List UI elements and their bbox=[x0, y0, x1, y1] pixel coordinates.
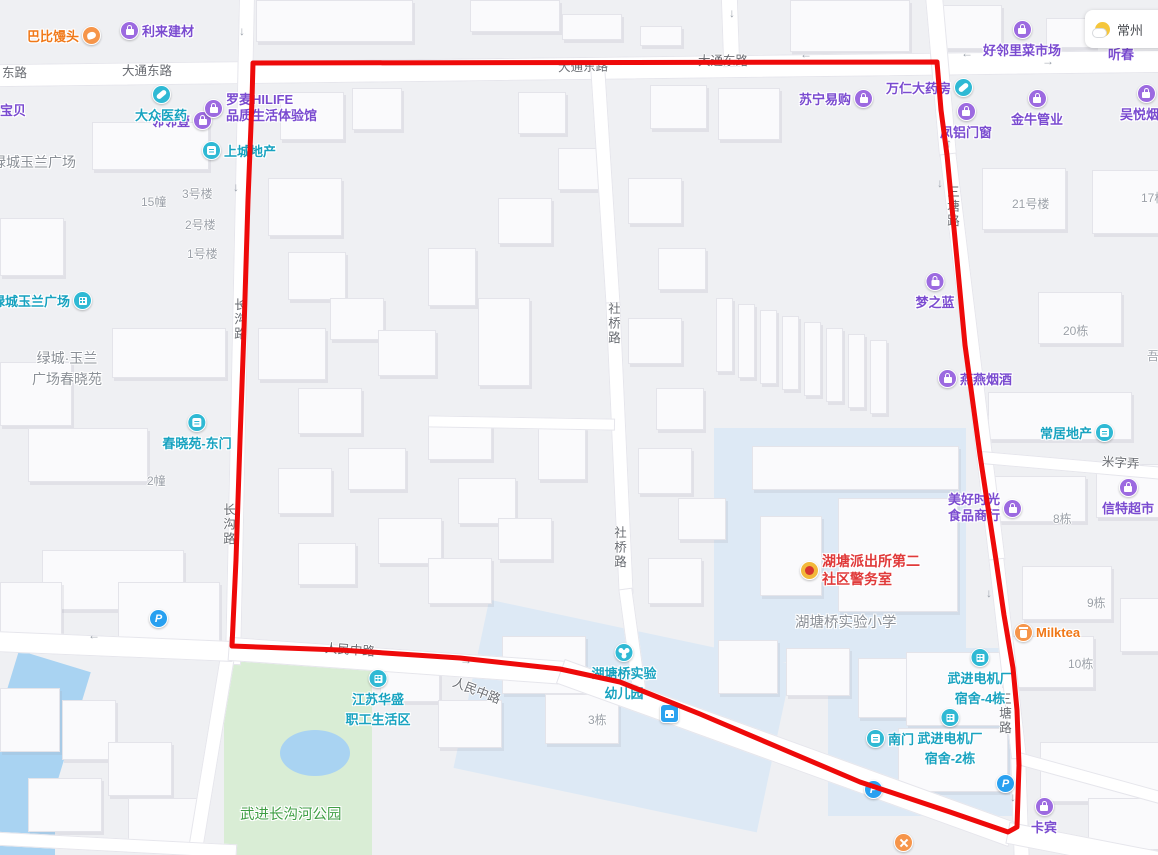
building bbox=[518, 92, 566, 134]
parking-icon[interactable]: P bbox=[149, 609, 168, 628]
building bbox=[658, 248, 706, 290]
oneway-arrow-icon: ← bbox=[88, 628, 100, 642]
building bbox=[118, 582, 220, 642]
building bbox=[330, 298, 384, 340]
oneway-arrow-icon: ← bbox=[961, 46, 973, 60]
building bbox=[28, 778, 102, 832]
pharmacy-capsule-icon bbox=[151, 85, 170, 104]
oneway-arrow-icon: ← bbox=[800, 47, 812, 61]
building-label: 15幢 bbox=[141, 193, 166, 210]
poi-shangcheng-dichan[interactable]: 上城地产 bbox=[202, 141, 276, 160]
building bbox=[790, 0, 910, 52]
building bbox=[278, 468, 332, 514]
restaurant-icon[interactable] bbox=[894, 833, 913, 852]
building bbox=[760, 310, 777, 384]
poi-police-station[interactable]: 湖塘派出所第二 社区警务室 bbox=[800, 552, 920, 588]
shopping-bag-icon bbox=[204, 99, 223, 118]
building bbox=[348, 448, 406, 490]
poi-babi-mantou[interactable]: 巴比馒头 bbox=[27, 26, 101, 45]
building bbox=[28, 428, 148, 482]
bun-shop-icon bbox=[82, 26, 101, 45]
flower-icon bbox=[614, 643, 633, 662]
road-label-datong-3: 大通东路 bbox=[698, 50, 748, 69]
building bbox=[678, 498, 726, 540]
gate-icon bbox=[188, 413, 207, 432]
shopping-bag-icon bbox=[938, 369, 957, 388]
building bbox=[848, 334, 865, 408]
shopping-bag-icon bbox=[1027, 89, 1046, 108]
building bbox=[378, 330, 436, 376]
oneway-arrow-icon: ↓ bbox=[233, 180, 239, 194]
road-label-sheqiao-2: 社桥路 bbox=[610, 526, 629, 570]
poi-haolinli-market[interactable]: 好邻里菜市场 bbox=[983, 20, 1061, 59]
shopping-bag-icon bbox=[120, 21, 139, 40]
shopping-bag-icon bbox=[956, 102, 975, 121]
building-label: 2号楼 bbox=[185, 216, 216, 233]
building bbox=[638, 448, 692, 494]
parking-icon[interactable]: P bbox=[996, 774, 1015, 793]
poi-dorm-2[interactable]: 武进电机厂 宿舍-2栋 bbox=[917, 708, 982, 767]
building-icon bbox=[970, 648, 989, 667]
sun-cloud-icon bbox=[1095, 22, 1110, 37]
poi-dorm-4[interactable]: 武进电机厂 宿舍-4栋 bbox=[947, 648, 1012, 707]
building bbox=[112, 328, 226, 378]
gate-icon bbox=[866, 729, 885, 748]
shopping-bag-icon bbox=[1136, 84, 1155, 103]
building bbox=[656, 388, 704, 430]
building-label: 8栋 bbox=[1053, 510, 1072, 527]
building bbox=[782, 316, 799, 390]
poi-yanyan-yanjiu[interactable]: 燕燕烟酒 bbox=[938, 369, 1012, 388]
poi-fenglv-menchuang[interactable]: 凤铝门窗 bbox=[940, 102, 992, 141]
poi-jinniu-guanye[interactable]: 金牛管业 bbox=[1011, 89, 1063, 128]
building bbox=[786, 648, 850, 696]
road-label-changgou-2: 长沟路 bbox=[219, 503, 238, 547]
shopping-bag-icon bbox=[1118, 478, 1137, 497]
oneway-arrow-icon: → bbox=[460, 653, 472, 667]
building-label: 10栋 bbox=[1068, 655, 1093, 672]
poi-mengzhilan[interactable]: 梦之蓝 bbox=[915, 272, 954, 311]
poi-suning[interactable]: 苏宁易购 bbox=[799, 89, 873, 108]
poi-lilai-jiancai[interactable]: 利来建材 bbox=[120, 21, 194, 40]
building bbox=[752, 446, 959, 490]
parking-icon[interactable]: P bbox=[864, 780, 883, 799]
shopping-bag-icon bbox=[1003, 499, 1022, 518]
building-label: 吾 bbox=[1147, 347, 1158, 364]
building bbox=[870, 340, 887, 414]
building-label: 17栋 bbox=[1141, 189, 1158, 206]
poi-luomai-hilife[interactable]: 罗麦HILIFE 品质生活体验馆 bbox=[204, 92, 317, 124]
building bbox=[650, 85, 707, 129]
road-label-donglu: 东路 bbox=[2, 62, 27, 81]
shopping-bag-icon bbox=[854, 89, 873, 108]
poi-dazhong-yiyao[interactable]: 大众医药 bbox=[135, 85, 187, 124]
building bbox=[298, 388, 362, 434]
real-estate-icon bbox=[202, 141, 221, 160]
shopping-bag-icon bbox=[925, 272, 944, 291]
building bbox=[628, 178, 682, 224]
poi-lvcheng-plaza[interactable]: 绿城玉兰广场 bbox=[0, 291, 92, 310]
road-label-santang-1: 三塘路 bbox=[943, 185, 962, 229]
building-label: 3号楼 bbox=[182, 185, 213, 202]
building bbox=[718, 88, 780, 140]
weather-widget[interactable]: 常州 bbox=[1085, 10, 1158, 48]
road-label-sheqiao-1: 社桥路 bbox=[604, 302, 623, 346]
building-label: 3栋 bbox=[588, 711, 607, 728]
building bbox=[1022, 566, 1112, 620]
building-label: 1号楼 bbox=[187, 245, 218, 262]
police-badge-icon bbox=[800, 561, 819, 580]
shopping-bag-icon bbox=[1034, 797, 1053, 816]
building bbox=[628, 318, 682, 364]
building bbox=[288, 252, 346, 300]
weather-city: 常州 bbox=[1117, 20, 1143, 39]
building bbox=[428, 248, 476, 306]
building-icon bbox=[73, 291, 92, 310]
poi-changju-dichan[interactable]: 常居地产 bbox=[1040, 423, 1114, 442]
oneway-arrow-icon: ↓ bbox=[729, 6, 735, 20]
poi-baobei[interactable]: 宝贝 bbox=[0, 100, 26, 119]
oneway-arrow-icon: ↑ bbox=[999, 597, 1005, 611]
building bbox=[562, 14, 622, 40]
building-label: 21号楼 bbox=[1012, 195, 1049, 212]
building-icon bbox=[940, 708, 959, 727]
pharmacy-capsule-icon bbox=[954, 78, 973, 97]
poi-south-gate[interactable]: 南门 bbox=[866, 729, 914, 748]
poi-milktea[interactable]: Milktea bbox=[1014, 623, 1080, 642]
poi-primary-school[interactable]: 湖塘桥实验小学 bbox=[795, 611, 897, 632]
road-label-changgou-1: 长沟路 bbox=[230, 298, 249, 342]
building bbox=[738, 304, 755, 378]
poi-lvcheng-plaza-name[interactable]: 绿城玉兰广场 bbox=[0, 152, 76, 172]
building bbox=[0, 688, 60, 752]
poi-wanren-pharmacy[interactable]: 万仁大药房 bbox=[886, 78, 973, 97]
building bbox=[352, 88, 402, 130]
building bbox=[648, 558, 702, 604]
building bbox=[470, 0, 560, 32]
poi-kindergarten[interactable]: 湖塘桥实验 幼儿园 bbox=[591, 643, 656, 702]
building bbox=[826, 328, 843, 402]
building bbox=[108, 742, 172, 796]
poi-jiangsu-huasheng[interactable]: 江苏华盛 职工生活区 bbox=[345, 669, 410, 728]
building bbox=[640, 26, 682, 46]
building-label: 20栋 bbox=[1063, 322, 1088, 339]
road-label-renmin-1: 人民中路 bbox=[324, 637, 375, 659]
oneway-arrow-icon: ↓ bbox=[986, 586, 992, 600]
building bbox=[718, 640, 778, 694]
road-label-datong-2: 大通东路 bbox=[558, 56, 608, 76]
building-icon bbox=[368, 669, 387, 688]
building bbox=[0, 218, 64, 276]
building bbox=[478, 298, 530, 386]
road-label-mizi: 米字弄 bbox=[1101, 451, 1140, 473]
building bbox=[438, 700, 502, 748]
building bbox=[268, 178, 342, 236]
building bbox=[256, 0, 413, 42]
poi-changgou-park[interactable]: 武进长沟河公园 bbox=[240, 803, 342, 824]
real-estate-icon bbox=[1095, 423, 1114, 442]
building bbox=[498, 518, 552, 560]
building-label: 2幢 bbox=[147, 472, 166, 489]
poi-chunxiao-east-gate[interactable]: 春晓苑-东门 bbox=[162, 413, 231, 452]
building bbox=[1120, 598, 1158, 652]
road-label-datong-1: 大通东路 bbox=[122, 60, 172, 79]
pond bbox=[280, 730, 350, 776]
building bbox=[258, 328, 326, 380]
map-canvas[interactable]: 东路 大通东路 大通东路 大通东路 长沟路 长沟路 社桥路 社桥路 三塘路 三塘… bbox=[0, 0, 1158, 855]
poi-xinte-chaoshi[interactable]: 信特超市 bbox=[1102, 478, 1154, 517]
building bbox=[428, 558, 492, 604]
milktea-cup-icon bbox=[1014, 623, 1033, 642]
shopping-bag-icon bbox=[1012, 20, 1031, 39]
building bbox=[298, 543, 356, 585]
poi-kabin[interactable]: 卡宾 bbox=[1031, 797, 1057, 836]
building-label: 9栋 bbox=[1087, 594, 1106, 611]
building bbox=[716, 298, 733, 372]
building bbox=[498, 198, 552, 244]
oneway-arrow-icon: ↓ bbox=[239, 24, 245, 38]
building bbox=[804, 322, 821, 396]
poi-meihao-shiguang[interactable]: 美好时光 食品商行 bbox=[948, 492, 1022, 524]
bus-stop-icon[interactable] bbox=[660, 704, 679, 723]
poi-chunxiao-estate-name[interactable]: 绿城·玉兰 广场春晓苑 bbox=[32, 348, 102, 389]
poi-wuyue-yanjiu[interactable]: 吴悦烟酒 bbox=[1120, 84, 1158, 123]
